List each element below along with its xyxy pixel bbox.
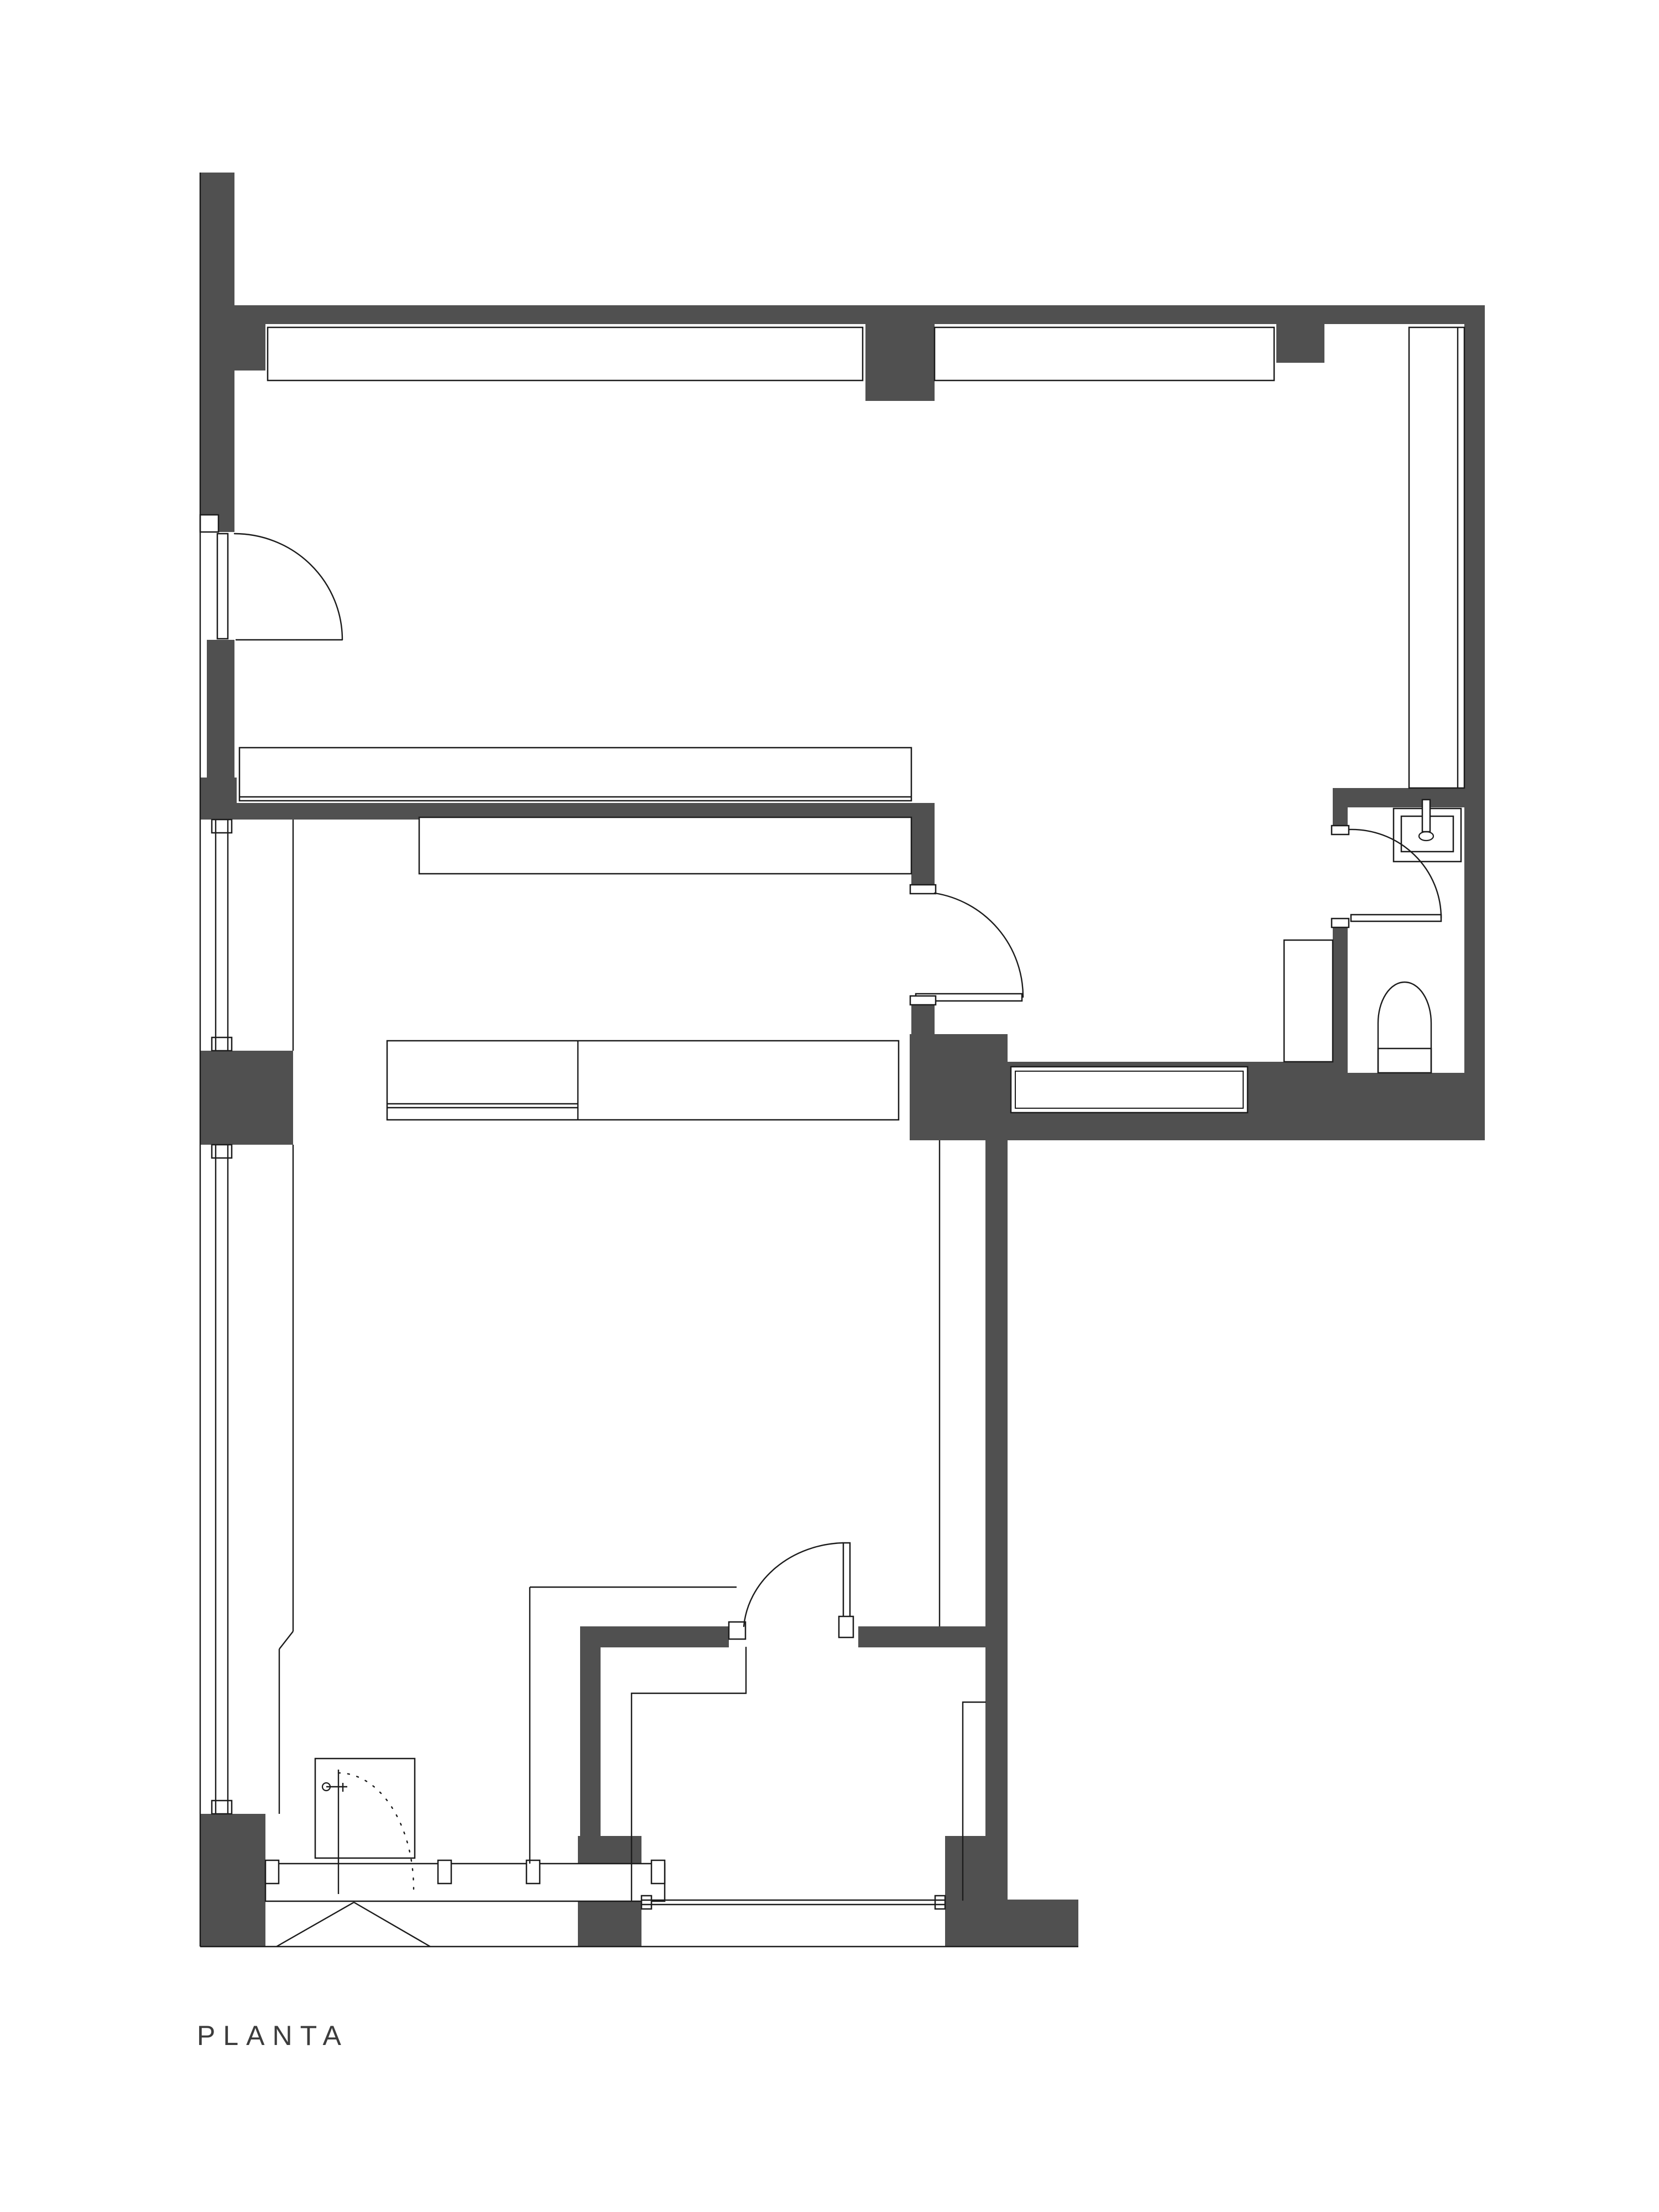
plan-title: PLANTA: [197, 2020, 349, 2052]
jamb-bath-door-top: [1332, 826, 1349, 834]
counter-middle-room: [419, 817, 911, 874]
jamb-band-3: [526, 1860, 540, 1884]
sink-faucet: [1422, 800, 1430, 832]
window-strip-2: [935, 327, 1274, 380]
jamb-track-left: [641, 1896, 651, 1909]
block-left-facade: [200, 1051, 293, 1145]
jamb-band-1: [265, 1860, 279, 1884]
jamb-interior-door-bottom: [910, 996, 936, 1005]
niche-bottom-wall: [1011, 1067, 1248, 1113]
wall-bathroom-left-lower: [1333, 918, 1348, 1073]
jamb-entry-right: [839, 1616, 853, 1637]
closet-right-wall: [1409, 327, 1464, 788]
wall-right-lower: [985, 1140, 1008, 1836]
wall-bathroom-top: [1333, 788, 1464, 807]
wall-top: [234, 305, 1485, 324]
toilet-tank: [1378, 1048, 1431, 1073]
pier-top-1: [865, 324, 935, 401]
counter-top-room: [239, 748, 911, 801]
left-door-frame: [217, 534, 228, 639]
closet-dashed-door-box: [315, 1759, 415, 1858]
jamb-glazing-2: [212, 1037, 232, 1051]
bathroom-door-leaf: [1351, 915, 1441, 921]
wall-porch-top-right: [858, 1626, 985, 1647]
jamb-entry-left: [729, 1622, 745, 1639]
block-middle: [910, 1034, 1008, 1140]
jamb-glazing-3: [212, 1145, 232, 1158]
jamb-left-door: [200, 515, 218, 532]
pier-top-2: [1276, 324, 1324, 363]
jamb-glazing-4: [212, 1801, 232, 1814]
jamb-track-right: [935, 1896, 945, 1909]
wall-bottom-stub: [1008, 1900, 1078, 1947]
jamb-bath-door-bottom: [1332, 919, 1349, 927]
jamb-band-4: [651, 1860, 665, 1884]
cabinet-bathroom-side: [1284, 940, 1333, 1062]
floor-plan-drawing: [0, 0, 1659, 2212]
wall-interior-lower: [911, 1005, 935, 1034]
block-bottom-left: [200, 1814, 265, 1947]
window-band-bottom: [265, 1864, 665, 1901]
jamb-glazing-1: [212, 820, 232, 833]
floor-plan: PLANTA: [0, 0, 1659, 2212]
wall-interior-upper: [911, 820, 935, 885]
wall-porch-left: [580, 1626, 601, 1836]
block-porch-right: [945, 1836, 1008, 1947]
jamb-band-2: [438, 1860, 451, 1884]
wall-right: [1464, 324, 1485, 1139]
wall-left-junction-block: [200, 778, 237, 820]
wall-under-bathroom: [1348, 1073, 1485, 1140]
wall-porch-top-left: [580, 1626, 729, 1647]
jamb-interior-door-top: [910, 885, 936, 894]
window-strip-1: [268, 327, 863, 380]
